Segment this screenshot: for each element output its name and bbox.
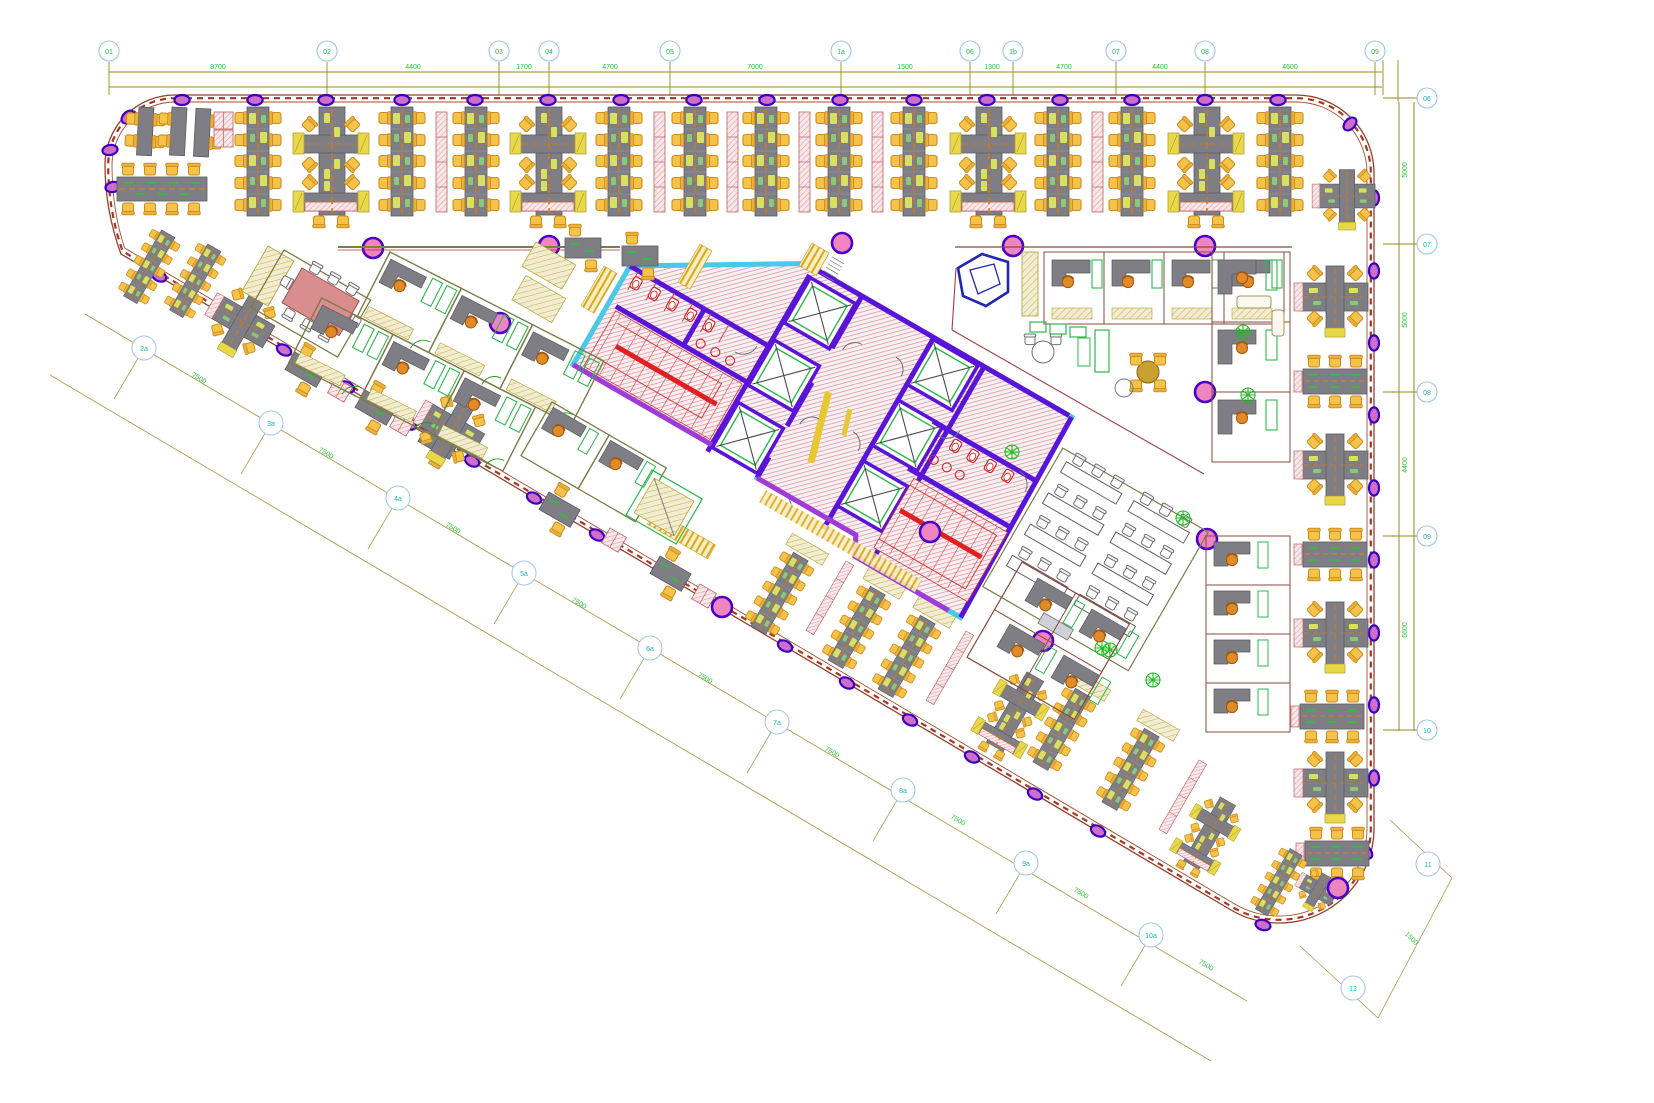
svg-text:9a: 9a <box>1022 861 1030 868</box>
svg-text:4a: 4a <box>394 496 402 503</box>
svg-text:02: 02 <box>323 49 331 56</box>
svg-text:7500: 7500 <box>949 814 966 828</box>
svg-text:4400: 4400 <box>405 64 421 71</box>
svg-text:1300: 1300 <box>984 64 1000 71</box>
svg-text:05: 05 <box>666 49 674 56</box>
svg-text:1a: 1a <box>837 49 845 56</box>
svg-text:6a: 6a <box>646 646 654 653</box>
svg-text:1700: 1700 <box>516 64 532 71</box>
svg-text:03: 03 <box>495 49 503 56</box>
svg-text:07: 07 <box>1112 49 1120 56</box>
svg-text:12: 12 <box>1349 986 1357 993</box>
svg-text:7a: 7a <box>773 720 781 727</box>
svg-text:06: 06 <box>966 49 974 56</box>
svg-text:4700: 4700 <box>1056 64 1072 71</box>
svg-text:5000: 5000 <box>1402 312 1409 328</box>
svg-text:06: 06 <box>1423 96 1431 103</box>
svg-text:7500: 7500 <box>570 597 587 611</box>
svg-text:11: 11 <box>1424 862 1431 869</box>
svg-text:4400: 4400 <box>1152 64 1168 71</box>
svg-text:01: 01 <box>105 49 113 56</box>
svg-text:04: 04 <box>545 49 553 56</box>
svg-text:07: 07 <box>1423 242 1431 249</box>
svg-text:08: 08 <box>1423 390 1431 397</box>
svg-text:4600: 4600 <box>1282 64 1298 71</box>
svg-text:7500: 7500 <box>1072 887 1089 901</box>
svg-text:4400: 4400 <box>1402 457 1409 473</box>
svg-text:09: 09 <box>1371 49 1379 56</box>
svg-text:09: 09 <box>1423 534 1431 541</box>
svg-text:1500: 1500 <box>897 64 913 71</box>
svg-text:7500: 7500 <box>696 672 713 686</box>
svg-text:5a: 5a <box>520 571 528 578</box>
svg-text:7500: 7500 <box>1197 959 1214 973</box>
svg-text:1b: 1b <box>1009 49 1017 56</box>
svg-text:2a: 2a <box>140 346 148 353</box>
svg-text:10: 10 <box>1423 728 1431 735</box>
svg-text:7500: 7500 <box>190 372 207 386</box>
svg-text:8a: 8a <box>899 788 907 795</box>
svg-text:4700: 4700 <box>602 64 618 71</box>
svg-text:7500: 7500 <box>444 522 461 536</box>
svg-text:5000: 5000 <box>1402 162 1409 178</box>
svg-text:10a: 10a <box>1145 933 1157 940</box>
svg-text:3a: 3a <box>267 421 275 428</box>
svg-text:7500: 7500 <box>317 447 334 461</box>
svg-text:7500: 7500 <box>823 746 840 760</box>
svg-text:8700: 8700 <box>210 64 226 71</box>
svg-text:7000: 7000 <box>747 64 763 71</box>
svg-text:08: 08 <box>1201 49 1209 56</box>
svg-text:6600: 6600 <box>1402 622 1409 638</box>
